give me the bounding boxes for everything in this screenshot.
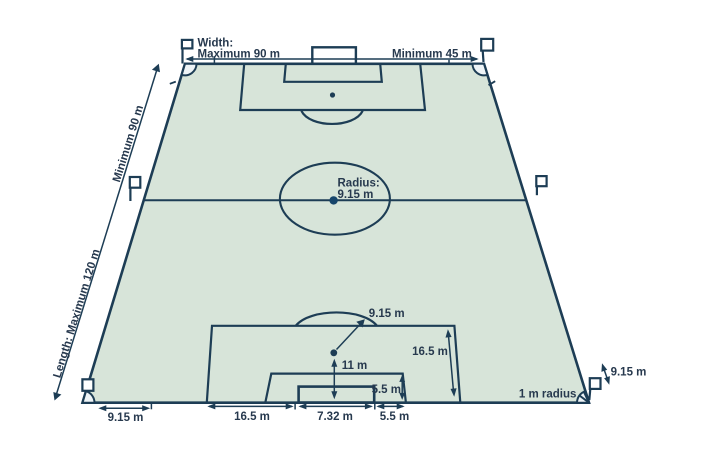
svg-text:5.5 m: 5.5 m	[372, 384, 401, 396]
svg-text:7.32 m: 7.32 m	[317, 411, 353, 423]
svg-text:9.15 m: 9.15 m	[338, 189, 374, 201]
svg-text:16.5 m: 16.5 m	[234, 411, 270, 423]
svg-text:Radius:: Radius:	[338, 177, 380, 189]
svg-text:9.15 m: 9.15 m	[611, 367, 647, 379]
svg-text:Maximum 90 m: Maximum 90 m	[198, 48, 280, 60]
svg-text:1 m radius: 1 m radius	[519, 389, 577, 401]
svg-text:9.15 m: 9.15 m	[369, 308, 405, 320]
svg-text:5.5 m: 5.5 m	[380, 411, 409, 423]
svg-text:Minimum 45 m: Minimum 45 m	[392, 48, 472, 60]
svg-text:16.5 m: 16.5 m	[412, 346, 448, 358]
svg-text:11 m: 11 m	[342, 360, 368, 372]
svg-text:9.15 m: 9.15 m	[108, 412, 144, 424]
